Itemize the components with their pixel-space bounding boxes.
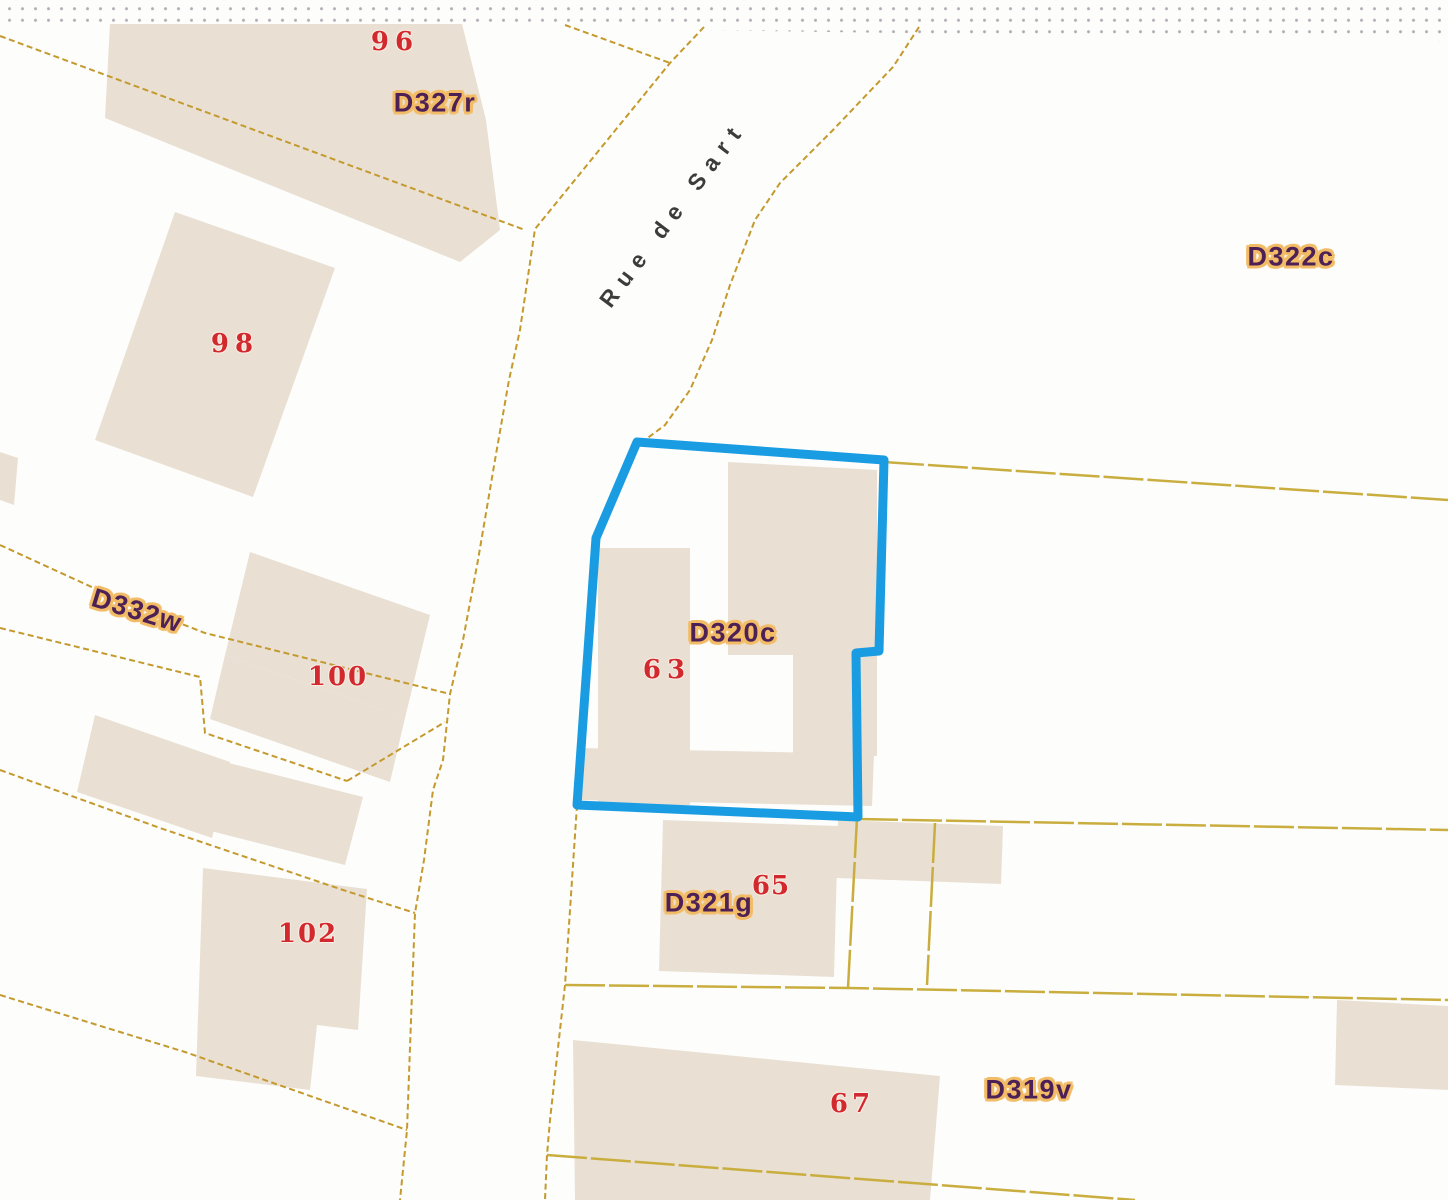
building-63-bottom-footprint (578, 748, 874, 806)
building-100-d-footprint (77, 715, 230, 838)
building-65-ext-footprint (836, 820, 1003, 884)
street-right-boundary-south (545, 805, 577, 1200)
lot-line-east-upper (884, 462, 1448, 500)
street-right-boundary (641, 27, 919, 443)
cadastral-map[interactable] (0, 0, 1448, 1200)
lot-line-east-lower (565, 985, 1448, 1000)
building-65-footprint (659, 820, 838, 977)
building-98-footprint (95, 212, 335, 497)
lot-line-top-spur (565, 25, 670, 63)
building-96-footprint (105, 24, 500, 262)
building-67-footprint (573, 1040, 940, 1200)
building-319-right-footprint (1335, 1000, 1448, 1090)
map-canvas[interactable]: 96D327r98D322cRue de SartD332w100102D320… (0, 0, 1448, 1200)
building-102-footprint (196, 868, 367, 1090)
building-left-stub-footprint (0, 452, 18, 505)
